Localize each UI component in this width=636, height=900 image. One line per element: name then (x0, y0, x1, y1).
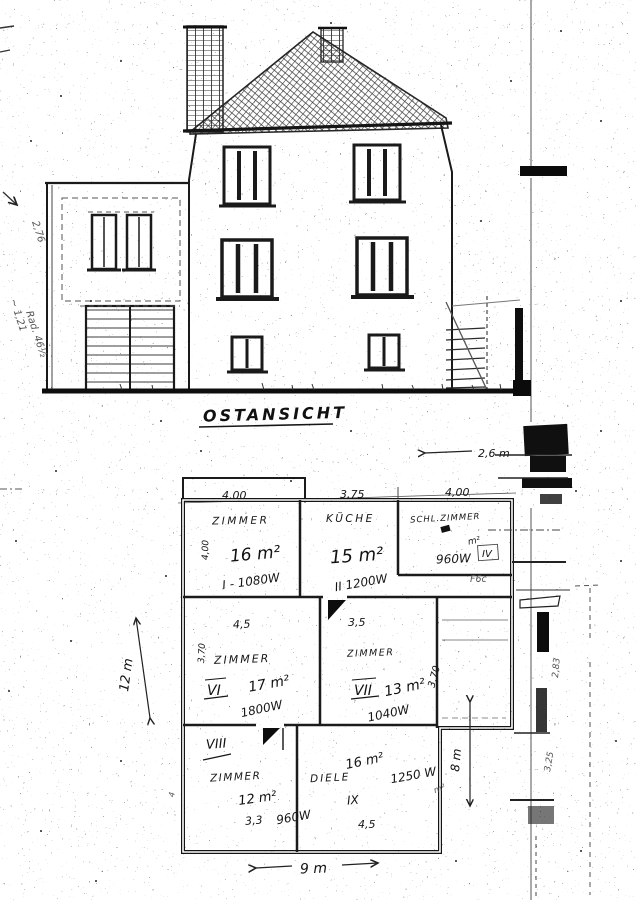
scan-noise (0, 0, 636, 900)
scanned-blueprint-page: OSTANSICHT 2,6 m 4,00 3,75 4,00 (0, 0, 636, 900)
blueprint-drawing: OSTANSICHT 2,6 m 4,00 3,75 4,00 (0, 0, 636, 900)
